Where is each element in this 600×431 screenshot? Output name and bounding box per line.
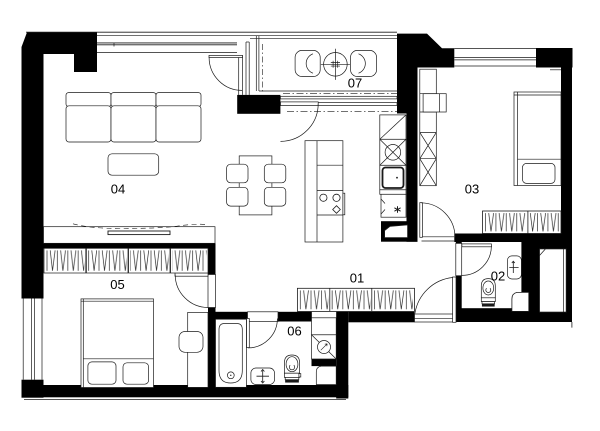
svg-text:01: 01: [350, 271, 364, 286]
svg-text:06: 06: [287, 323, 301, 338]
svg-text:05: 05: [110, 277, 124, 292]
svg-text:02: 02: [491, 269, 505, 284]
svg-text:04: 04: [111, 182, 125, 197]
svg-text:03: 03: [465, 182, 479, 197]
svg-text:07: 07: [348, 76, 362, 91]
